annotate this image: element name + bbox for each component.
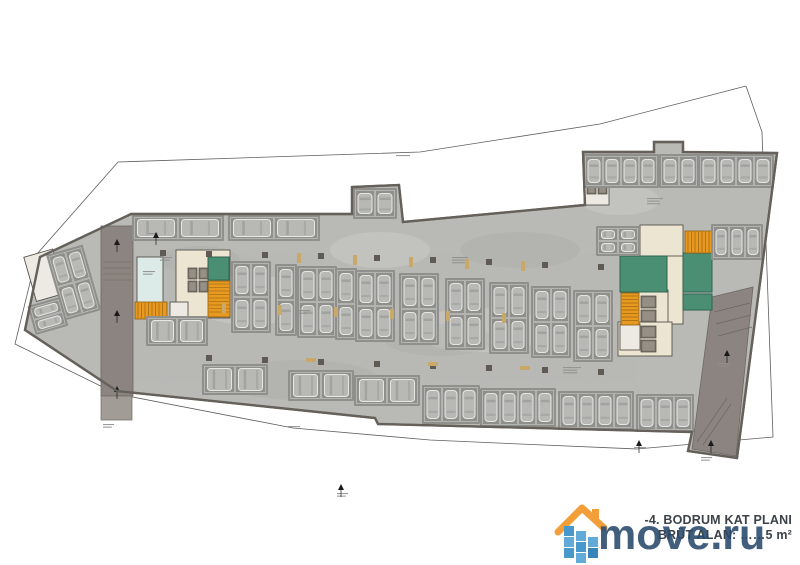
parking-block xyxy=(596,226,640,256)
room-green xyxy=(683,294,712,310)
parking-block xyxy=(583,154,659,188)
watermark-text: move.ru xyxy=(598,514,765,557)
floor-plan-page: -4. BODRUM KAT PLANI BRÜT ALAN: ……5 m² m… xyxy=(0,0,800,565)
watermark-pixels-icon xyxy=(564,526,598,563)
parking-block xyxy=(202,364,268,395)
room-green xyxy=(208,257,229,280)
parking-block xyxy=(422,385,480,424)
stair xyxy=(685,231,712,253)
parking-block xyxy=(636,394,694,432)
stair xyxy=(621,293,639,325)
room-green xyxy=(683,253,712,292)
parking-block xyxy=(399,273,439,345)
parking-block xyxy=(146,316,208,346)
room-mint xyxy=(137,257,163,304)
floor-plan-drawing xyxy=(0,0,800,565)
room-cream xyxy=(640,225,683,258)
parking-block xyxy=(228,215,320,241)
stair xyxy=(208,281,230,317)
parking-block xyxy=(489,282,529,354)
room-white xyxy=(170,302,188,318)
parking-block xyxy=(531,286,571,358)
parking-block xyxy=(288,370,354,401)
parking-block xyxy=(132,215,224,241)
room-white xyxy=(620,324,640,350)
parking-block xyxy=(275,264,297,336)
parking-block xyxy=(711,224,763,260)
room-green xyxy=(620,256,667,292)
parking-block xyxy=(558,391,634,430)
parking-block xyxy=(659,154,699,188)
parking-block xyxy=(354,375,420,406)
parking-block xyxy=(480,388,556,427)
parking-block xyxy=(573,290,613,362)
parking-block xyxy=(698,154,774,188)
watermark: move.ru xyxy=(552,498,798,564)
parking-block xyxy=(445,278,485,350)
parking-block xyxy=(335,268,357,340)
parking-block xyxy=(353,188,397,219)
parking-block xyxy=(355,270,395,342)
parking-block xyxy=(297,266,337,338)
parking-block xyxy=(231,261,271,333)
